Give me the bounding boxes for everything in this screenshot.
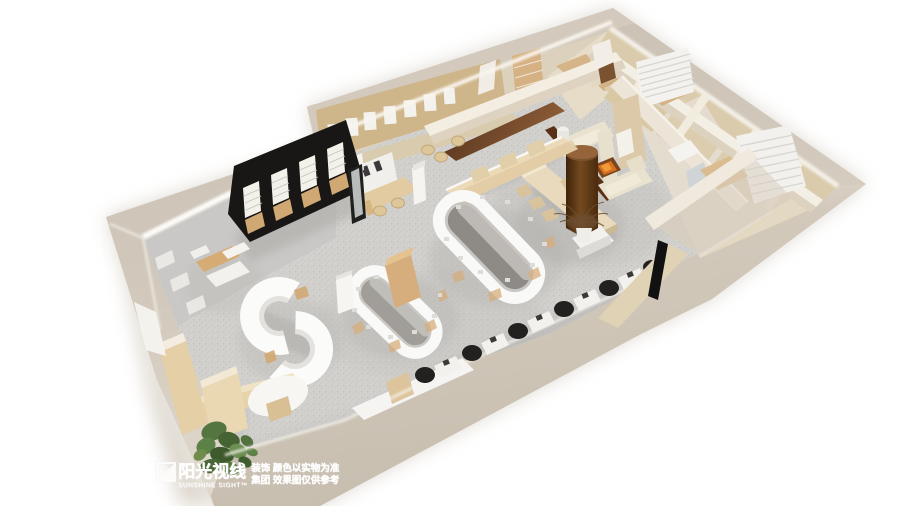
svg-text:集团 效果图仅供参考: 集团 效果图仅供参考 xyxy=(250,474,340,486)
svg-text:SUNSHINE SIGHT™: SUNSHINE SIGHT™ xyxy=(178,482,248,489)
svg-text:阳光视线: 阳光视线 xyxy=(178,461,246,481)
svg-text:装饰 颜色以实物为准: 装饰 颜色以实物为准 xyxy=(250,462,340,474)
